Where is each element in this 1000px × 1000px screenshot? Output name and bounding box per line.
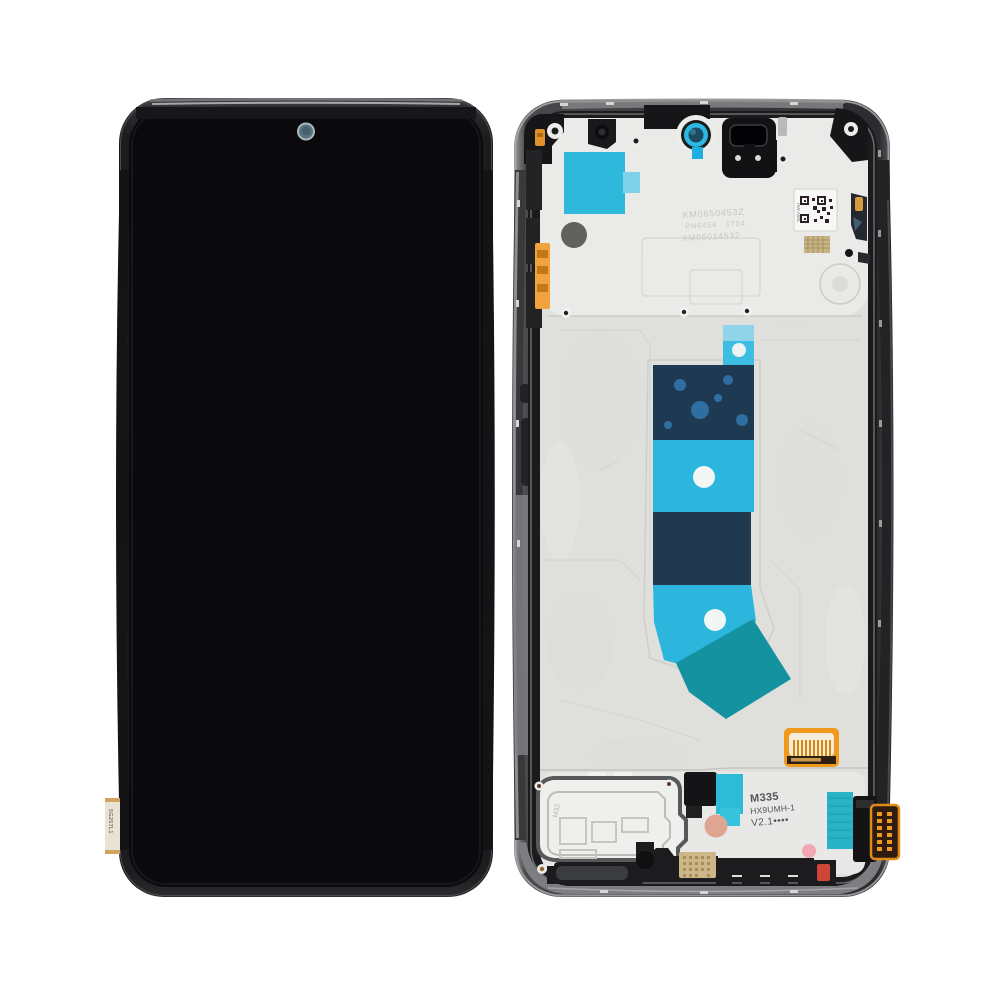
svg-text:HW-A50L: HW-A50L xyxy=(796,203,801,223)
svg-text:5G257L1: 5G257L1 xyxy=(107,809,113,834)
svg-text:M335: M335 xyxy=(750,791,780,805)
